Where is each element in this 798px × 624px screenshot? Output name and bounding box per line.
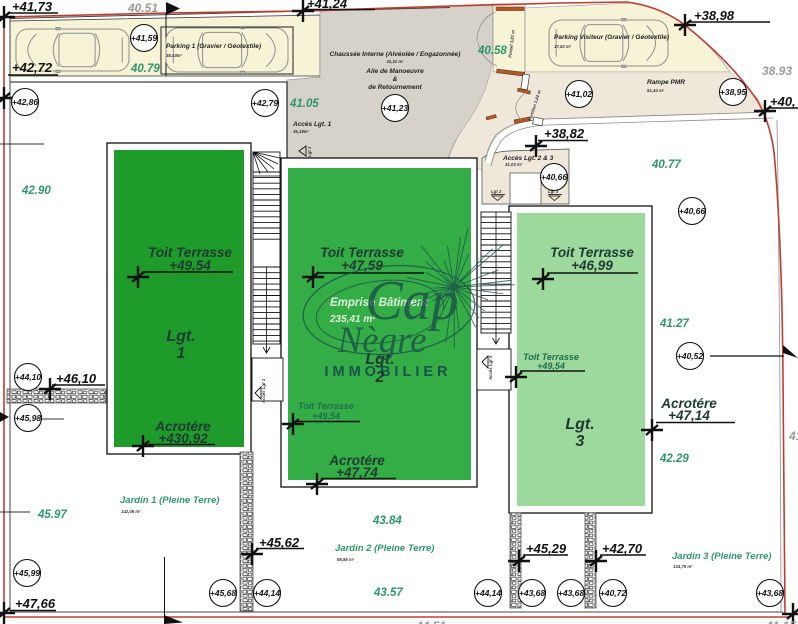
svg-text:+47,66: +47,66 [15,596,56,611]
svg-text:&: & [393,76,398,83]
svg-text:Accès Lgt. 2 & 3: Accès Lgt. 2 & 3 [502,155,554,162]
svg-text:Nègre: Nègre [336,320,426,361]
svg-text:+40,72: +40,72 [600,588,627,598]
svg-text:38.93: 38.93 [762,64,792,78]
svg-text:+430,92: +430,92 [158,431,208,446]
svg-text:40.58: 40.58 [477,45,507,57]
svg-text:40.77: 40.77 [651,159,681,171]
svg-text:Lgt.: Lgt. [166,328,195,345]
svg-text:+38,95: +38,95 [720,87,747,97]
svg-text:+47,74: +47,74 [336,465,378,480]
svg-text:45.97: 45.97 [37,509,67,521]
svg-text:+46,10: +46,10 [56,371,97,386]
svg-text:41,: 41, [788,429,798,443]
svg-text:+38,82: +38,82 [544,126,585,141]
svg-text:+42,86: +42,86 [12,97,39,107]
svg-text:31,03 m²: 31,03 m² [505,162,523,167]
svg-text:+41,02: +41,02 [566,89,593,99]
svg-text:Toit Terrasse: Toit Terrasse [298,401,354,411]
svg-text:+43,68: +43,68 [558,588,585,598]
svg-text:Chaussée Interne (Alvéolée / E: Chaussée Interne (Alvéolée / Engazonnée) [330,51,461,58]
svg-text:38,43m²: 38,43m² [166,53,183,58]
svg-text:+42,72: +42,72 [12,60,53,75]
svg-text:32,31 m²: 32,31 m² [386,59,404,64]
svg-text:+41,59: +41,59 [131,33,158,43]
svg-text:Accès Lgt 1: Accès Lgt 1 [261,378,266,404]
svg-text:41.27: 41.27 [659,318,689,330]
svg-text:+40,66: +40,66 [541,172,568,182]
svg-text:+41,73: +41,73 [12,0,53,14]
svg-text:Lgt 2: Lgt 2 [491,189,502,194]
svg-text:+49,54: +49,54 [169,258,211,273]
svg-text:44,51: 44,51 [415,619,446,624]
svg-text:Lgt 1: Lgt 1 [307,146,312,157]
svg-text:Lgt.: Lgt. [565,416,594,433]
svg-text:142,06 m²: 142,06 m² [121,509,141,514]
svg-text:+43,68: +43,68 [757,588,784,598]
svg-text:+41,23: +41,23 [382,103,409,113]
svg-text:Accès Lgt. 1: Accès Lgt. 1 [292,121,332,128]
svg-text:40.51: 40.51 [127,1,158,15]
svg-text:43.84: 43.84 [372,515,402,527]
svg-text:42.90: 42.90 [21,185,51,197]
svg-text:Accès Lgt 3: Accès Lgt 3 [488,355,493,381]
svg-text:IMMOBILIER: IMMOBILIER [325,364,452,380]
svg-text:+45,98: +45,98 [15,413,42,423]
svg-text:+44,14: +44,14 [475,588,502,598]
svg-text:+40,66: +40,66 [679,206,706,216]
svg-text:Jardin 1 (Pleine Terre): Jardin 1 (Pleine Terre) [120,495,219,506]
svg-text:Parking Visiteur (Gravier / Gé: Parking Visiteur (Gravier / Géotextile) [554,34,669,41]
svg-text:+45,29: +45,29 [526,541,567,556]
svg-text:43.57: 43.57 [373,587,403,599]
svg-text:Jardin 3 (Pleine Terre): Jardin 3 (Pleine Terre) [672,551,771,562]
svg-text:+44,10: +44,10 [15,372,42,382]
svg-text:17,62 m²: 17,62 m² [554,44,572,49]
svg-text:41,15: 41,15 [765,619,796,624]
svg-text:Aile de Manoeuvre: Aile de Manoeuvre [365,68,424,75]
svg-text:41.05: 41.05 [289,98,319,110]
svg-text:3: 3 [576,433,585,450]
svg-text:+42,70: +42,70 [602,541,643,556]
svg-text:Rampe PMR: Rampe PMR [647,79,685,86]
svg-text:55,86 m²: 55,86 m² [337,557,355,562]
svg-text:134,79 m²: 134,79 m² [673,564,693,569]
svg-text:+38,98: +38,98 [694,8,735,23]
svg-text:+40,52: +40,52 [677,351,704,361]
svg-text:36,19m²: 36,19m² [293,129,310,134]
svg-text:Parking 1 (Gravier / Géotextil: Parking 1 (Gravier / Géotextile) [166,43,261,50]
svg-text:+45,68: +45,68 [210,588,237,598]
svg-text:+46,99: +46,99 [571,258,613,273]
svg-text:de Retournement: de Retournement [368,84,422,91]
svg-text:Jardin 2 (Pleine Terre): Jardin 2 (Pleine Terre) [335,543,434,554]
svg-text:+40,: +40, [770,94,796,109]
svg-text:51,44 m²: 51,44 m² [647,88,665,93]
svg-text:+44,14: +44,14 [254,588,281,598]
svg-text:42.29: 42.29 [659,453,689,465]
svg-text:+47,14: +47,14 [668,408,710,423]
svg-text:+49,54: +49,54 [537,361,565,371]
svg-text:40.79: 40.79 [130,63,160,75]
svg-text:+42,79: +42,79 [252,98,279,108]
svg-text:+45,99: +45,99 [14,568,41,578]
svg-text:+49,54: +49,54 [312,411,340,421]
svg-text:1: 1 [177,345,186,362]
svg-text:+43,68: +43,68 [519,588,546,598]
